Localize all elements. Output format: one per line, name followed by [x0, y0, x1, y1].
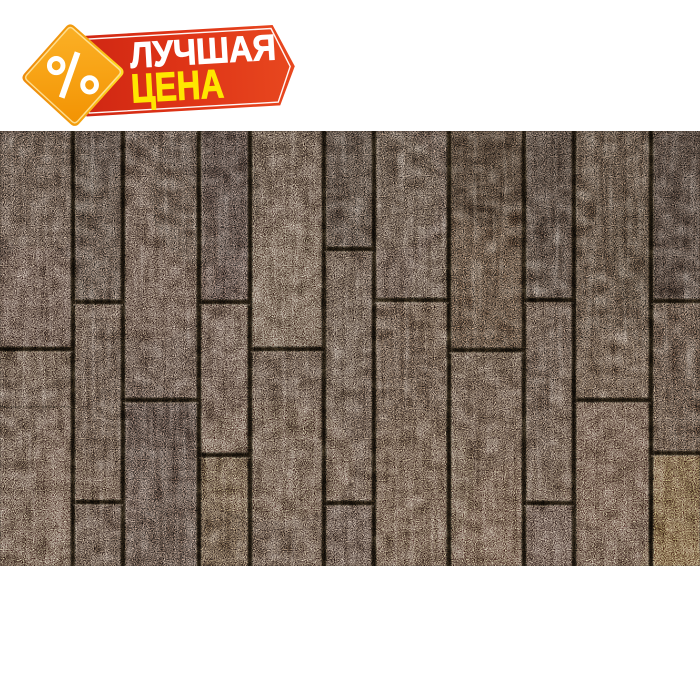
svg-text:ЦЕНА: ЦЕНА: [130, 60, 225, 111]
